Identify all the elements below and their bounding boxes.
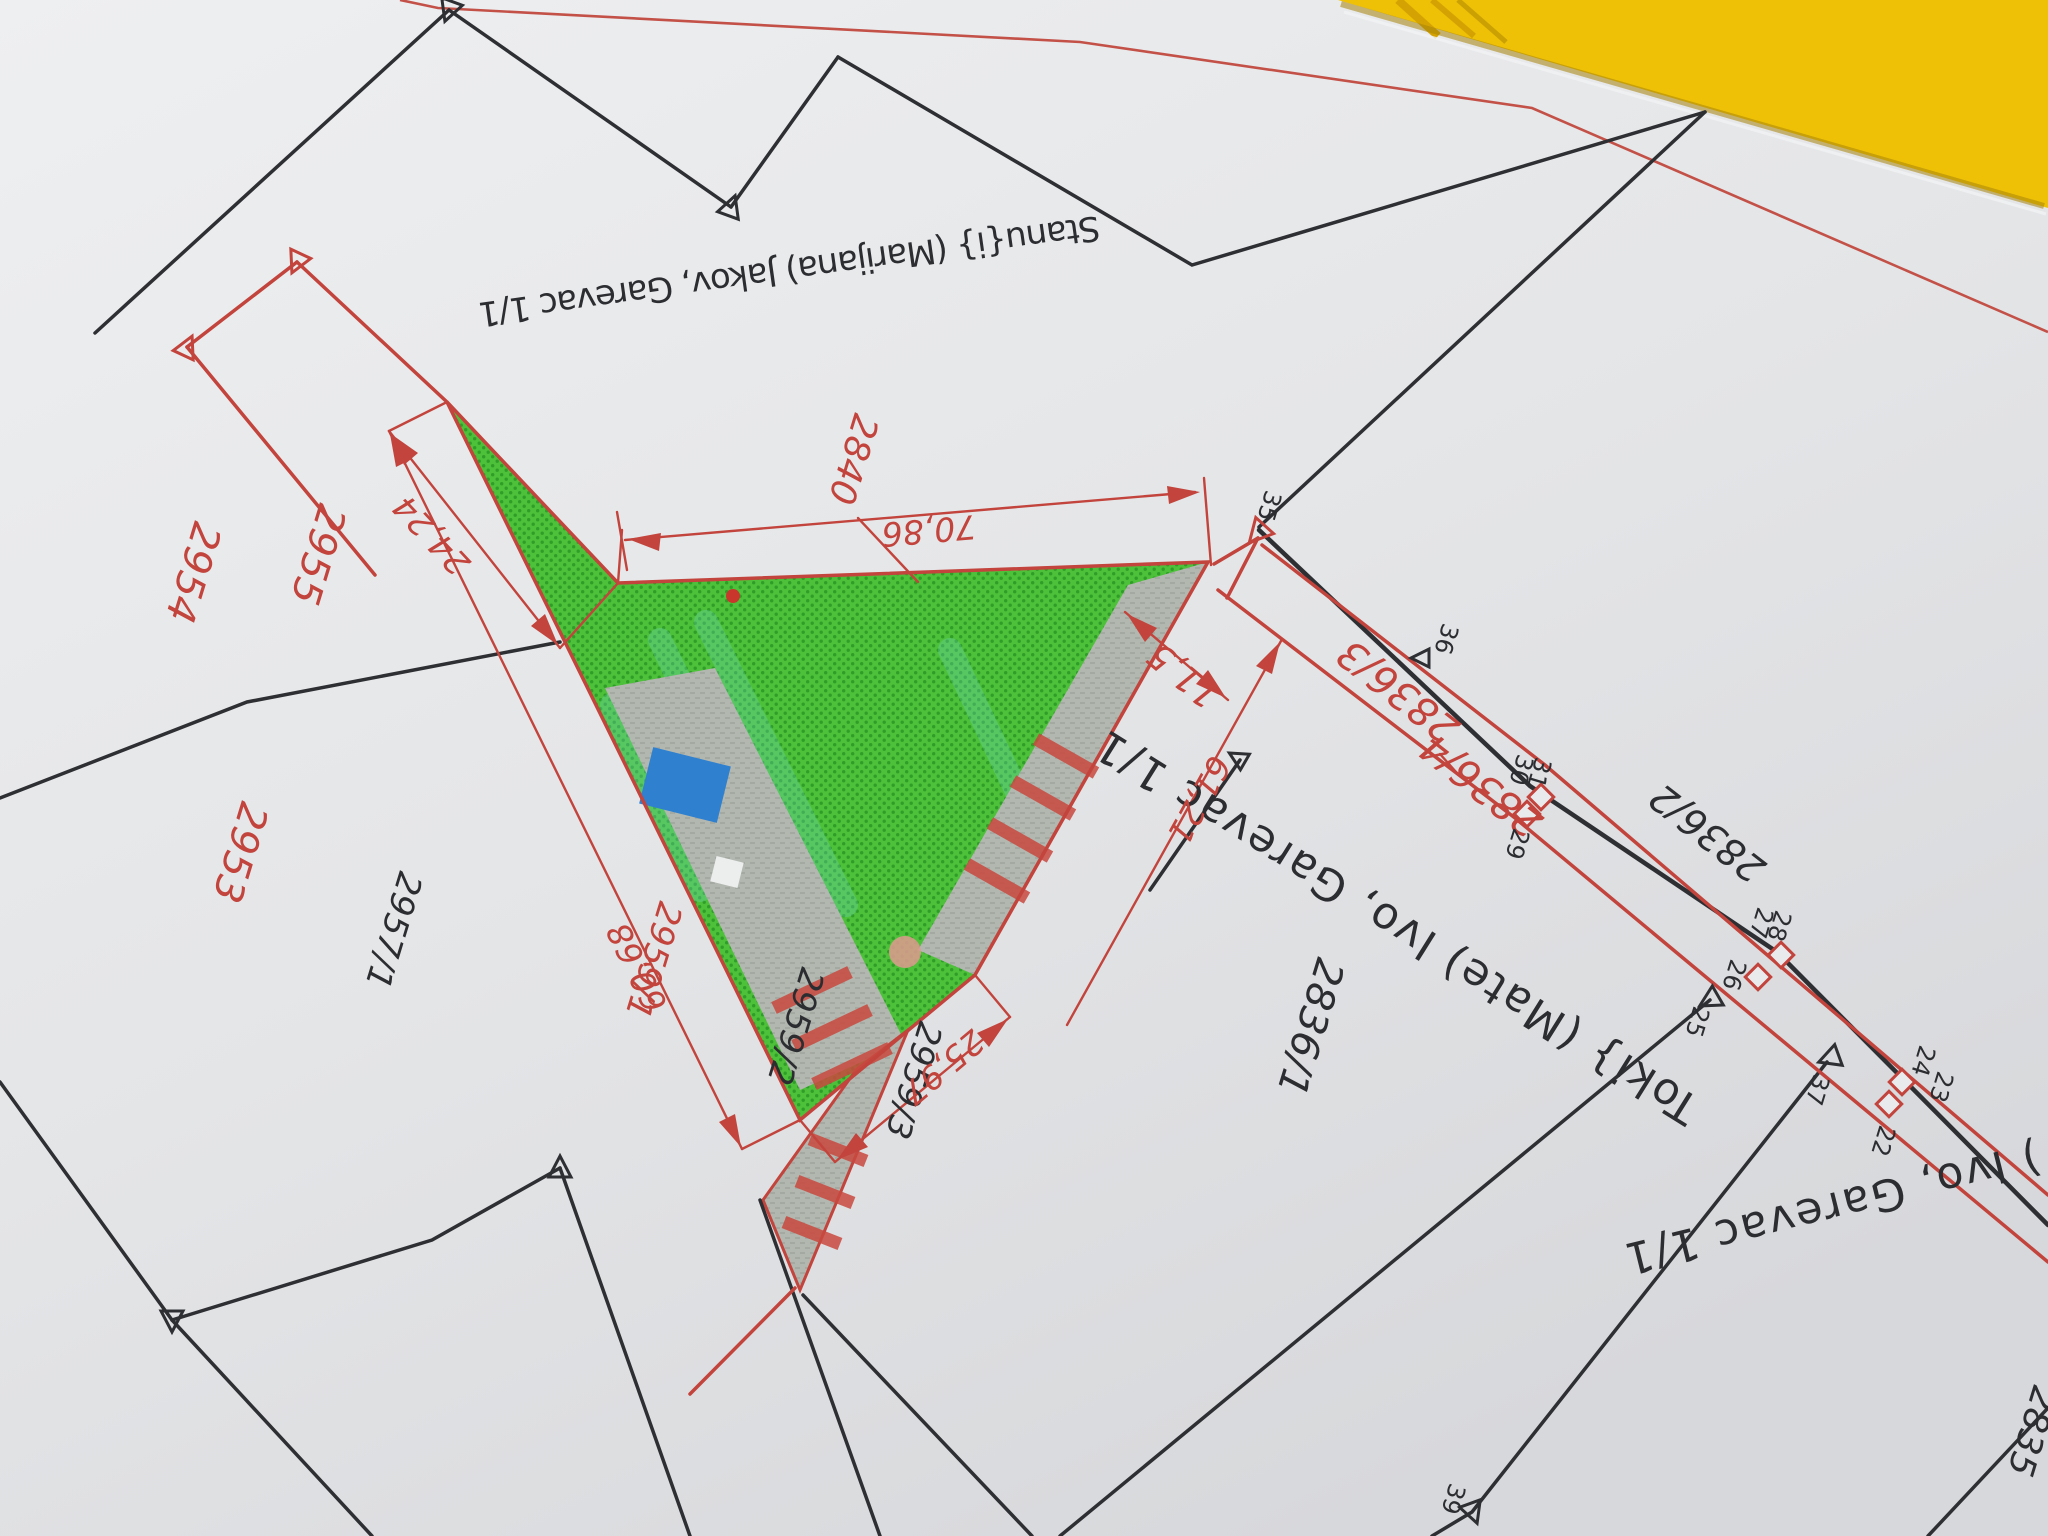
red-point-dot	[726, 589, 740, 603]
pink-blob	[889, 936, 921, 968]
dimension-label-70-86: 70,86	[880, 507, 978, 554]
cadastral-map: Stanu{i} (Marijana) Jakov, Garevac 1/1 T…	[0, 0, 2048, 1536]
photographed-cadastral-plan: Stanu{i} (Marijana) Jakov, Garevac 1/1 T…	[0, 0, 2048, 1536]
